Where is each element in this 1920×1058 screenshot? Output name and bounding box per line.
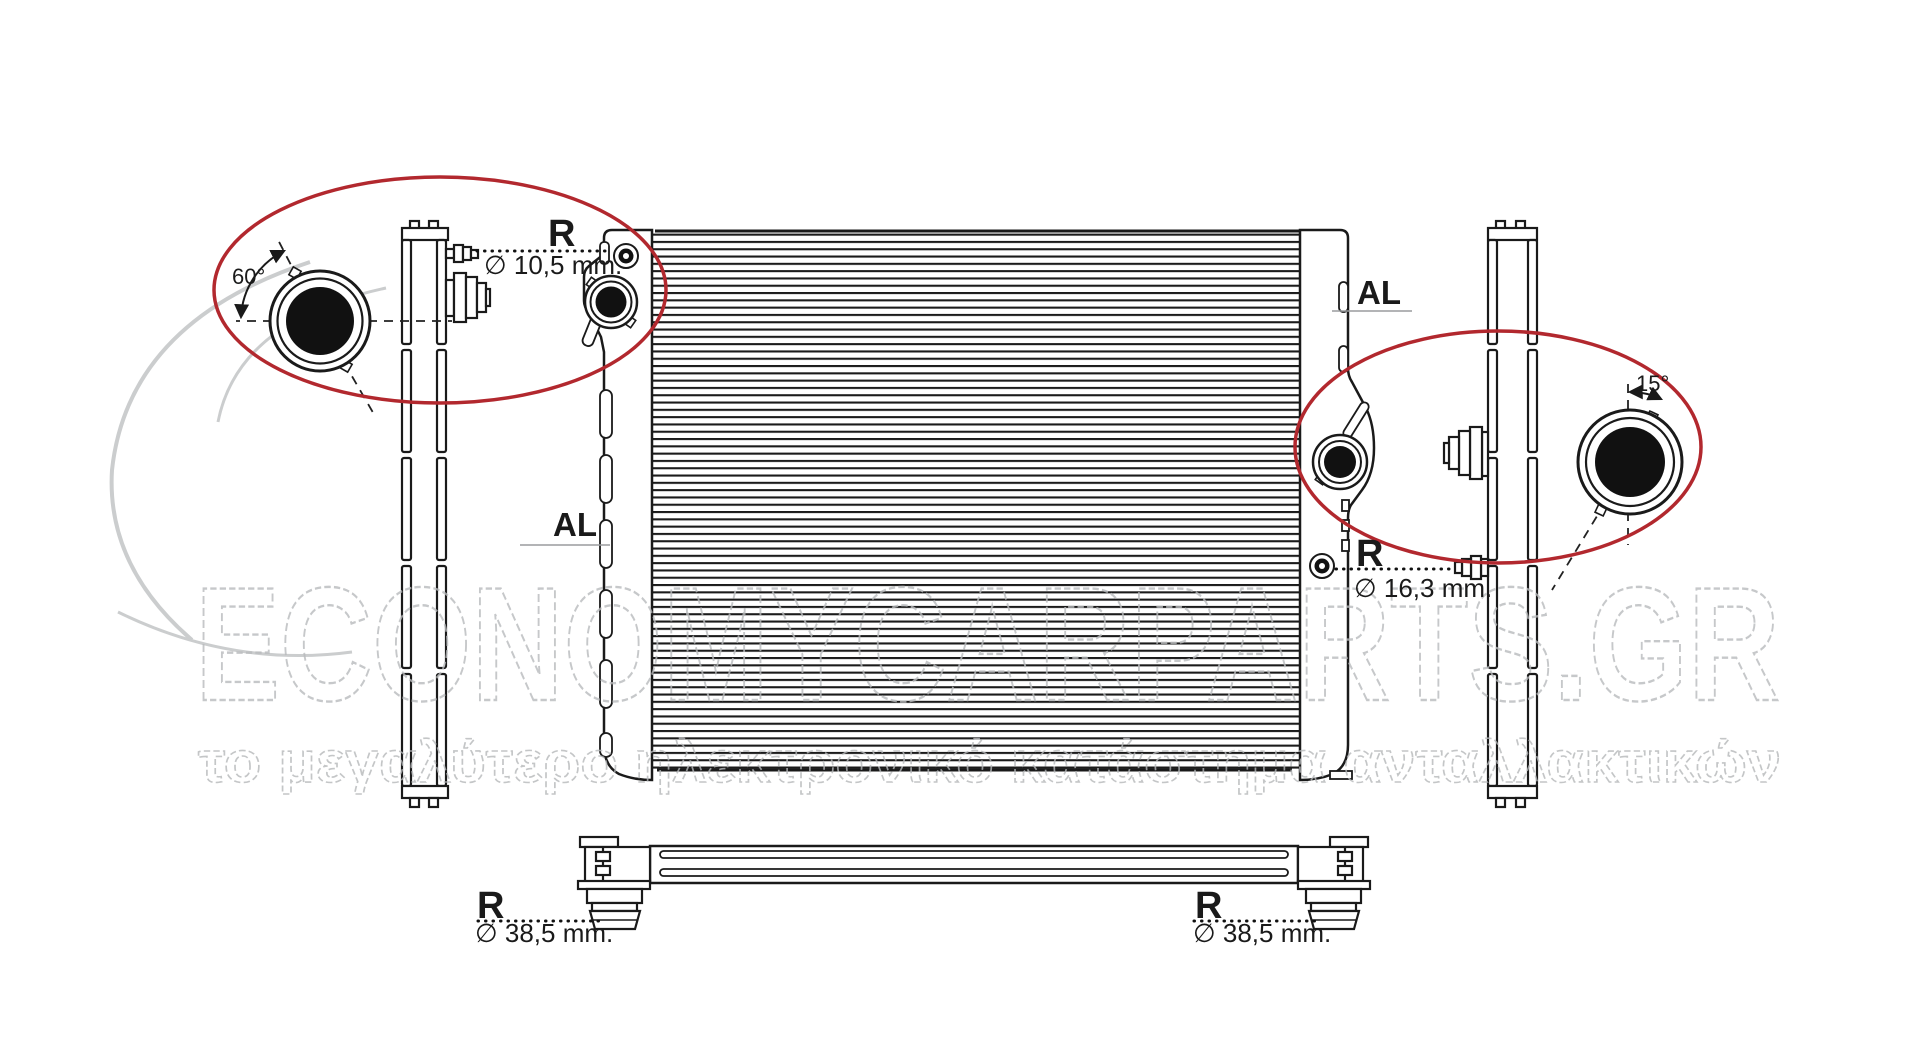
ref-bottom-right-diameter: ∅ 38,5 mm. xyxy=(1193,918,1331,948)
radiator-technical-drawing: ECONOMYCARPARTS.GR το μεγαλύτερο ηλεκτρο… xyxy=(0,0,1920,1058)
al-right-text: AL xyxy=(1357,274,1401,311)
tank-foot xyxy=(1516,798,1525,807)
pipe-slot xyxy=(660,869,1288,876)
angle-label-right: 15° xyxy=(1636,371,1669,396)
left-hose-port-circle xyxy=(236,236,452,416)
right-bulge-port xyxy=(1313,435,1367,489)
ref-mid-right-diameter: ∅ 16,3 mm. xyxy=(1354,573,1492,603)
left-large-port xyxy=(585,276,637,328)
material-label-left: AL xyxy=(520,506,610,545)
ref-top-left-label: R xyxy=(548,213,575,255)
watermark-text: ECONOMYCARPARTS.GR το μεγαλύτερο ηλεκτρο… xyxy=(195,554,1781,795)
crossmember-left-bracket xyxy=(578,837,650,929)
pipe-slot xyxy=(660,851,1288,858)
watermark-brand: ECONOMYCARPARTS.GR xyxy=(195,554,1780,735)
tank-foot xyxy=(429,798,438,807)
diagram-canvas: ECONOMYCARPARTS.GR το μεγαλύτερο ηλεκτρο… xyxy=(0,0,1920,1058)
right-tank-large-fitting xyxy=(1444,427,1488,479)
tank-foot xyxy=(410,798,419,807)
crossmember-right-bracket xyxy=(1298,837,1370,929)
watermark-tagline: το μεγαλύτερο ηλεκτρονικό κατάστημα αντα… xyxy=(198,730,1781,795)
angle-label-left: 60° xyxy=(232,264,265,289)
ref-bottom-left-diameter: ∅ 38,5 mm. xyxy=(475,918,613,948)
al-left-text: AL xyxy=(553,506,597,543)
tank-foot xyxy=(1496,798,1505,807)
left-tank-large-fitting xyxy=(446,273,490,322)
lower-crossmember xyxy=(578,837,1370,929)
ref-top-left-diameter: ∅ 10,5 mm. xyxy=(484,250,622,280)
left-tank-nipple-fitting xyxy=(446,245,478,262)
